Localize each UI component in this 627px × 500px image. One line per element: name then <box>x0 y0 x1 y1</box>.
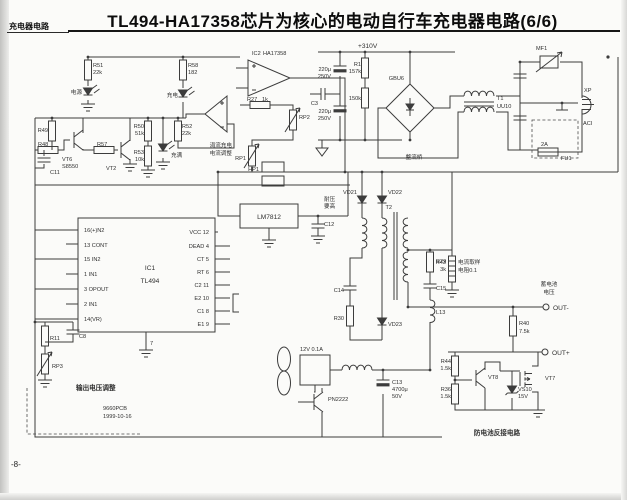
label-r50-val: 51k <box>135 131 144 137</box>
optocoupler-hp1 <box>262 162 284 186</box>
label-c13-ref: C13 <box>392 380 402 386</box>
label-ic1-ref: IC1 <box>145 265 156 272</box>
resistor-r52 <box>175 121 182 141</box>
ic1-pin-right-7: E1 9 <box>197 322 209 328</box>
opamp-ic2b <box>205 96 227 132</box>
potentiometer-rp3 <box>37 352 52 376</box>
label-310v: +310V <box>358 43 378 50</box>
transistor-vt8 <box>476 368 485 388</box>
label-hp1: HP1 <box>248 167 259 173</box>
capacitor-c15 <box>424 284 437 288</box>
label-xp: XP <box>584 88 592 94</box>
ground-protection <box>531 410 545 417</box>
label-vs10-ref: VS10 <box>518 387 532 393</box>
label-c11: C11 <box>50 170 60 176</box>
mosfet-vt7 <box>520 371 532 387</box>
ic1-pin-gnd: 7 <box>150 341 153 347</box>
label-vs10-val: 15V <box>518 394 528 400</box>
label-led-power: 电源 <box>71 88 83 96</box>
resistor-r53 <box>145 146 152 166</box>
capacitor-c13 <box>377 380 390 386</box>
caption-voltage-adjust: 输出电压调整 <box>76 383 116 392</box>
resistor-r49 <box>49 121 56 141</box>
label-ic2-ref: IC2 <box>252 51 261 57</box>
bridge-rectifier-gbu6 <box>386 84 434 132</box>
label-r43-ref: R43 <box>436 260 446 266</box>
fuse-fu1 <box>538 148 558 156</box>
varistor-mf1 <box>536 52 562 72</box>
led-charge <box>179 87 195 97</box>
label-fu1: FU1 <box>561 156 572 162</box>
label-vd23: VD23 <box>388 322 402 328</box>
label-t1-ref: T1 <box>497 96 504 102</box>
ic1-pin-left-0: 16(+)N2 <box>84 228 104 234</box>
label-r36-ref: R36 <box>441 387 451 393</box>
ic1-pin-left-5: 2 IN1 <box>84 302 97 308</box>
label-ic2-part: HA17358 <box>263 51 286 57</box>
label-r2-val: 150k <box>349 96 361 102</box>
label-vd22: VD22 <box>388 190 402 196</box>
label-c15: C15 <box>436 286 446 292</box>
inductor-l13 <box>430 300 435 323</box>
potentiometer-rp1 <box>244 144 259 168</box>
label-battery-1: 蓄电池 <box>541 280 558 288</box>
label-c12: C12 <box>324 222 334 228</box>
label-fan: 12V 0.1A <box>300 347 323 353</box>
label-c13-volt: 50V <box>392 394 402 400</box>
label-pcb-date: 1999-10-16 <box>103 414 132 420</box>
label-r51-val: 22k <box>93 70 102 76</box>
label-fan-transistor: PN2222 <box>328 397 348 403</box>
ic1-pin-right-5: E2 10 <box>194 296 209 302</box>
earth-symbol <box>316 148 328 156</box>
label-trickle-1: 涓流充电 <box>210 141 233 149</box>
label-cap220b-1: 220μ <box>318 109 331 115</box>
label-rp3: RP3 <box>52 364 63 370</box>
ic1-pin-left-3: 1 IN1 <box>84 272 97 278</box>
inductor-fan <box>342 365 372 370</box>
label-c3: C3 <box>311 101 318 107</box>
label-led-charge: 充电 <box>167 91 179 99</box>
ic1-pin-left-4: 3 OPOUT <box>84 287 109 293</box>
label-r40-val: 7.5k <box>519 329 530 335</box>
ic1-pin-right-4: C2 11 <box>194 283 209 289</box>
opamp-ic2a <box>248 60 290 96</box>
label-vt7: VT7 <box>545 376 555 382</box>
label-r43-val: 3k <box>440 267 446 273</box>
label-r58-ref: R58 <box>188 63 198 69</box>
label-r27-val: 1k <box>262 97 268 103</box>
resistor-r2 <box>362 88 369 108</box>
sense-resistor-r43 <box>449 256 456 282</box>
capacitor-c14 <box>344 286 357 290</box>
label-c13-val: 4700μ <box>392 387 408 393</box>
label-vt6-ref: VT6 <box>62 157 72 163</box>
resistor-r50 <box>145 121 152 141</box>
ground-led-full <box>156 162 170 169</box>
label-r44-ref: R44 <box>441 359 451 365</box>
label-cap220a-2: 250V <box>318 74 331 80</box>
diode-vd23 <box>378 318 387 325</box>
resistor-r11 <box>42 326 49 346</box>
label-fuse-2a: 2A <box>541 142 548 148</box>
label-vd21: VD21 <box>343 190 357 196</box>
label-sense-2: 电阻0.1 <box>458 266 477 274</box>
diode-vd21 <box>358 196 367 203</box>
label-c12-note1: 耐压 <box>324 195 336 203</box>
resistor-r44 <box>452 356 459 376</box>
label-bridge-note: 整流桥 <box>406 153 423 161</box>
label-r53-val: 10k <box>135 157 144 163</box>
ground-led-power <box>81 104 95 111</box>
label-r52-val: 22k <box>182 131 191 137</box>
wires-secondary-block <box>218 172 618 370</box>
label-r11: R11 <box>50 336 60 342</box>
scanned-schematic-page: TL494-HA17358芯片为核心的电动自行车充电器电路(6/6) 充电器电路… <box>0 0 627 500</box>
ic1-pin-left-6: 14(VR) <box>84 317 102 323</box>
zener-vs10 <box>506 386 519 395</box>
resistor-r30 <box>347 306 354 326</box>
label-sense-1: 电流取样 <box>458 258 481 266</box>
label-r27-ref: R27 <box>247 97 257 103</box>
label-c12-note2: 要高 <box>324 202 336 210</box>
potentiometer-rp2 <box>285 108 300 132</box>
label-battery-2: 电压 <box>543 288 555 296</box>
label-vt8: VT8 <box>488 375 498 381</box>
ground-r53 <box>141 170 155 177</box>
ground-rp3 <box>38 380 52 387</box>
label-trickle-2: 电流调整 <box>210 149 233 157</box>
ic1-pin-right-0: VCC 12 <box>189 230 209 236</box>
transistor-vt6 <box>74 130 83 150</box>
transistor-fan <box>314 392 323 412</box>
label-rp2: RP2 <box>299 115 310 121</box>
capacitor-c12 <box>312 224 325 228</box>
schematic-canvas: R51 22k 电源 R58 182 充电 R49 R48 C11 VT6 S8… <box>0 0 627 500</box>
fan-assembly <box>278 347 331 395</box>
capacitor-220u-top <box>334 66 347 72</box>
label-vt6-part: S8550 <box>62 164 78 170</box>
label-r49: R49 <box>38 128 48 134</box>
transistor-vt2 <box>121 140 130 160</box>
label-r51-ref: R51 <box>93 63 103 69</box>
resistor-r51 <box>85 60 92 80</box>
led-full <box>159 141 175 151</box>
label-c14: C14 <box>334 288 344 294</box>
label-vt2: VT2 <box>106 166 116 172</box>
label-bridge: GBU6 <box>389 76 404 82</box>
label-cap220b-2: 250V <box>318 116 331 122</box>
resistor-r40 <box>510 316 517 336</box>
ground-ic1 <box>139 350 153 357</box>
resistor-r29 <box>427 252 434 272</box>
choke-t1 <box>464 91 494 112</box>
label-out-neg: OUT- <box>553 305 569 312</box>
label-cap220a-1: 220μ <box>318 67 331 73</box>
label-t1-part: UU10 <box>497 104 511 110</box>
label-r44-val: 1.5k <box>440 366 451 372</box>
terminal-out-pos <box>542 349 548 355</box>
ic1-pin-right-6: C1 8 <box>197 309 209 315</box>
label-r1-ref: R1 <box>354 62 361 68</box>
capacitor-c11 <box>38 158 51 162</box>
resistor-r36 <box>452 384 459 404</box>
label-mf1: MF1 <box>536 46 547 52</box>
transformer-t2 <box>362 212 408 300</box>
ground-sense <box>445 290 459 297</box>
ic1-pin-right-2: CT 5 <box>197 257 209 263</box>
label-r50-ref: R50 <box>134 124 144 130</box>
label-out-pos: OUT+ <box>552 350 570 357</box>
label-r30: R30 <box>334 316 344 322</box>
ic1-pin-left-2: 15 IN2 <box>84 257 100 263</box>
label-r53-ref: R53 <box>134 150 144 156</box>
label-l13: L13 <box>436 310 445 316</box>
ac-plug-xp <box>582 96 594 114</box>
capacitor-c3 <box>321 88 325 100</box>
ground-vt2 <box>123 164 137 171</box>
label-r58-val: 182 <box>188 70 197 76</box>
resistor-r1 <box>362 58 369 78</box>
ground-lm7812 <box>262 240 276 247</box>
label-r57: R57 <box>97 142 107 148</box>
resistor-r58 <box>180 60 187 80</box>
ic1-pin-left-1: 13 CONT <box>84 243 108 249</box>
diode-vd22 <box>378 196 387 203</box>
label-led-full: 充满 <box>171 151 183 159</box>
label-pcb: 9660PCB <box>103 406 127 412</box>
led-power <box>84 85 100 95</box>
label-lm7812: LM7812 <box>257 214 281 221</box>
label-r48: R48 <box>38 142 48 148</box>
ic1-pin-labels: IC1 TL494 16(+)N2 13 CONT 15 IN2 1 IN1 3… <box>84 228 209 347</box>
ic1-pin-right-3: RT 6 <box>197 270 209 276</box>
label-r36-val: 1.5k <box>440 394 451 400</box>
caption-reverse-protection: 防电池反接电路 <box>474 428 521 437</box>
label-r40-ref: R40 <box>519 321 529 327</box>
label-r52-ref: R52 <box>182 124 192 130</box>
ic1-pin-right-1: DEAD 4 <box>189 244 209 250</box>
label-c8: C8 <box>79 334 86 340</box>
ground-c12 <box>311 236 325 243</box>
label-rp1: RP1 <box>235 156 246 162</box>
label-t2: T2 <box>385 205 392 211</box>
label-ic1-part: TL494 <box>141 278 160 285</box>
terminal-out-neg <box>543 304 549 310</box>
label-r1-val: 157k <box>349 69 361 75</box>
label-aci: ACI <box>583 121 593 127</box>
